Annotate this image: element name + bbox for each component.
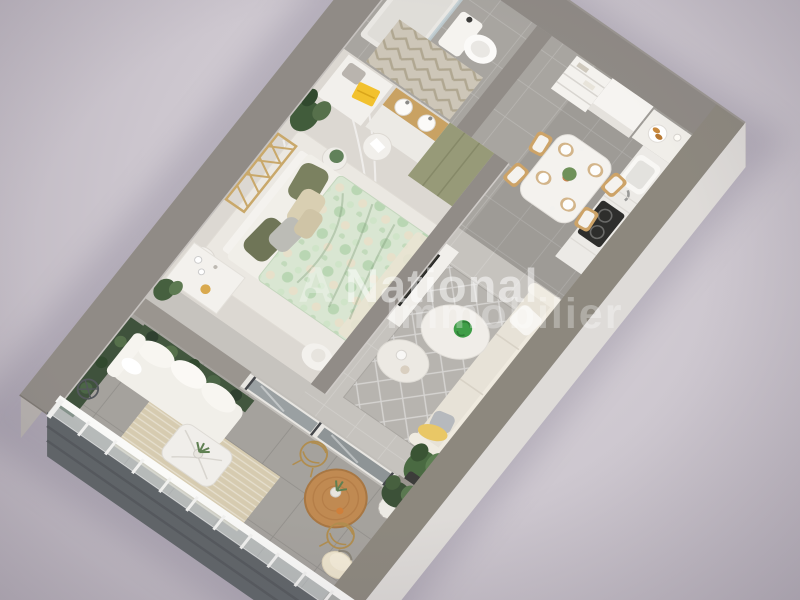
floorplan-svg — [0, 0, 800, 600]
floorplan-render: A National Immobilier — [0, 0, 800, 600]
